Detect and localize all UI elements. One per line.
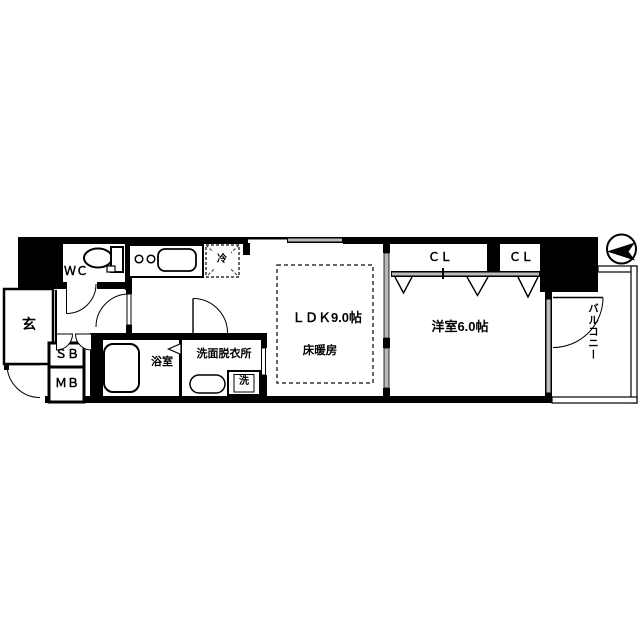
stove-burner-icon — [147, 255, 155, 263]
kitchen-counter — [129, 245, 203, 277]
sliding-partition — [384, 253, 389, 388]
label-closet-right: ＣＬ — [505, 251, 537, 264]
label-floor-heating: 床暖房 — [295, 345, 345, 357]
label-western-room: 洋室6.0帖 — [415, 320, 505, 334]
bathtub-icon — [104, 344, 139, 392]
label-entrance: 玄 — [20, 317, 38, 332]
label-ldk: ＬＤＫ9.0帖 — [272, 311, 382, 325]
stove-burner-icon — [135, 255, 143, 263]
bath-folding-door-icon — [169, 344, 182, 355]
label-bathroom: 浴室 — [144, 357, 180, 369]
kitchen-sink-icon — [158, 249, 196, 271]
label-closet-left: ＣＬ — [424, 251, 456, 264]
label-refrigerator: 冷 — [215, 255, 229, 266]
washroom-sliding-door — [262, 348, 266, 375]
label-washing-machine: 洗 — [237, 377, 251, 388]
label-balcony: バルコニー — [586, 303, 601, 387]
north-arrow-icon — [607, 235, 636, 264]
label-shoe-box: ＳＢ — [52, 348, 82, 361]
floorplan: ＷＣ 玄 ＳＢ ＭＢ 浴室 洗面脱衣所 洗 冷 ＬＤＫ9.0帖 床暖房 洋室6.… — [0, 0, 640, 640]
label-meter-box: ＭＢ — [52, 377, 82, 390]
washbasin-icon — [190, 375, 225, 393]
closet-hanger-icons — [395, 277, 538, 297]
label-washroom: 洗面脱衣所 — [189, 349, 259, 361]
label-wc: ＷＣ — [61, 265, 91, 278]
